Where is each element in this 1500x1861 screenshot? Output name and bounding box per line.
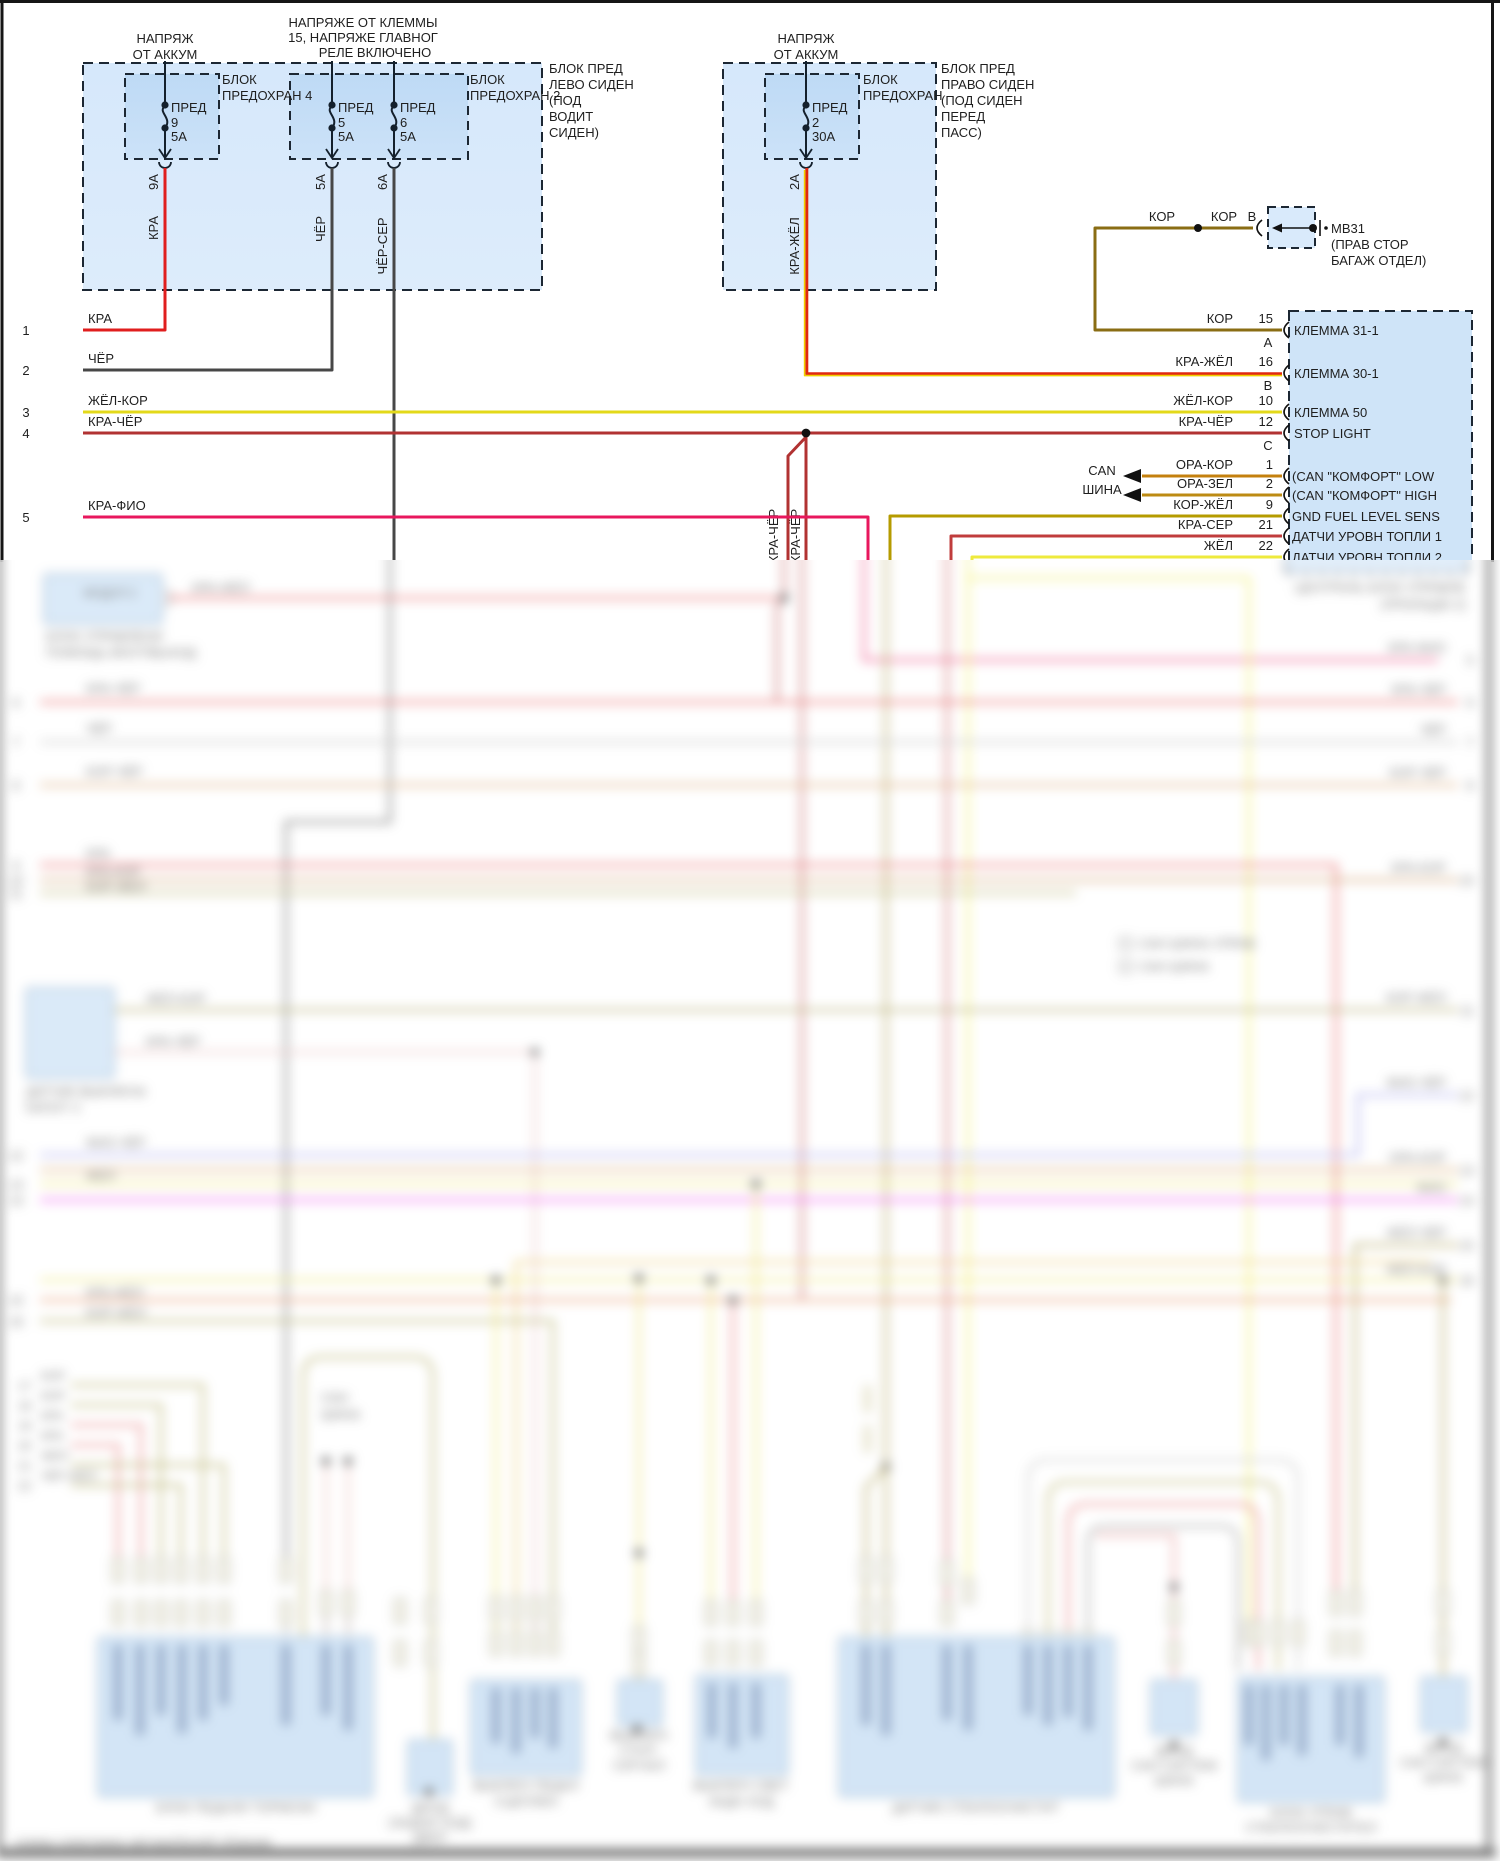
svg-text:15, НАПРЯЖЕ ГЛАВНОГ: 15, НАПРЯЖЕ ГЛАВНОГ xyxy=(288,30,438,45)
svg-text:2: 2 xyxy=(1266,476,1273,491)
svg-text:ОРА-КОР: ОРА-КОР xyxy=(1176,457,1233,472)
svg-text:ВОДИТ: ВОДИТ xyxy=(549,109,593,124)
svg-text:4: 4 xyxy=(22,426,29,441)
svg-text:ПРЕД: ПРЕД xyxy=(812,100,848,115)
svg-text:3: 3 xyxy=(22,405,29,420)
svg-text:5А: 5А xyxy=(400,129,416,144)
svg-text:ПРАВО СИДЕН: ПРАВО СИДЕН xyxy=(941,77,1034,92)
svg-text:ПРЕДОХРАН 2: ПРЕДОХРАН 2 xyxy=(470,88,560,103)
svg-text:КРА-ЖЁЛ: КРА-ЖЁЛ xyxy=(1175,354,1233,369)
svg-text:КОР: КОР xyxy=(1149,209,1175,224)
svg-text:В: В xyxy=(1248,209,1257,224)
svg-text:21: 21 xyxy=(1259,517,1273,532)
svg-text:КРА: КРА xyxy=(88,311,112,326)
svg-text:ЧЁР: ЧЁР xyxy=(88,351,114,366)
svg-text:ПАСС): ПАСС) xyxy=(941,125,982,140)
svg-text:9: 9 xyxy=(1266,497,1273,512)
svg-text:БЛОК: БЛОК xyxy=(863,72,898,87)
svg-text:2: 2 xyxy=(812,115,819,130)
svg-text:5А: 5А xyxy=(338,129,354,144)
svg-text:РЕЛЕ ВКЛЮЧЕНО: РЕЛЕ ВКЛЮЧЕНО xyxy=(319,45,431,60)
svg-text:БЛОК: БЛОК xyxy=(222,72,257,87)
svg-text:30А: 30А xyxy=(812,129,835,144)
svg-text:6А: 6А xyxy=(375,174,390,190)
svg-text:ПРЕД: ПРЕД xyxy=(338,100,374,115)
svg-text:ПРЕДОХРАН 4: ПРЕДОХРАН 4 xyxy=(222,88,312,103)
svg-text:БЛОК ПРЕД: БЛОК ПРЕД xyxy=(549,61,623,76)
svg-text:КРА-ЧЁР: КРА-ЧЁР xyxy=(1179,414,1233,429)
svg-text:КЛЕММА 31-1: КЛЕММА 31-1 xyxy=(1294,323,1379,338)
svg-text:6: 6 xyxy=(400,115,407,130)
svg-text:ПРЕД: ПРЕД xyxy=(171,100,207,115)
svg-text:5: 5 xyxy=(22,510,29,525)
svg-text:C: C xyxy=(1263,438,1272,453)
svg-text:5А: 5А xyxy=(313,174,328,190)
svg-text:16: 16 xyxy=(1259,354,1273,369)
svg-text:ЛЕВО СИДЕН: ЛЕВО СИДЕН xyxy=(549,77,634,92)
svg-text:ЖЁЛ: ЖЁЛ xyxy=(1204,538,1233,553)
svg-text:(ПОД: (ПОД xyxy=(549,93,581,108)
svg-text:ОТ АККУМ: ОТ АККУМ xyxy=(133,47,198,62)
svg-text:БАГАЖ ОТДЕЛ): БАГАЖ ОТДЕЛ) xyxy=(1331,253,1426,268)
svg-text:КОР: КОР xyxy=(1207,311,1233,326)
svg-text:МВ31: МВ31 xyxy=(1331,221,1365,236)
svg-text:15: 15 xyxy=(1259,311,1273,326)
svg-text:(ПРАВ СТОР: (ПРАВ СТОР xyxy=(1331,237,1409,252)
svg-text:B: B xyxy=(1264,378,1273,393)
svg-text:БЛОК: БЛОК xyxy=(470,72,505,87)
svg-text:2А: 2А xyxy=(787,174,802,190)
svg-text:9А: 9А xyxy=(146,174,161,190)
svg-text:ОТ АККУМ: ОТ АККУМ xyxy=(774,47,839,62)
svg-text:ЧЁР: ЧЁР xyxy=(313,216,328,242)
svg-text:5А: 5А xyxy=(171,129,187,144)
svg-text:КРА-ЖЁЛ: КРА-ЖЁЛ xyxy=(787,217,802,275)
svg-text:КОР-ЖЁЛ: КОР-ЖЁЛ xyxy=(1173,497,1233,512)
svg-text:(CAN "КОМФОРТ" LOW: (CAN "КОМФОРТ" LOW xyxy=(1292,469,1435,484)
svg-text:ПРЕД: ПРЕД xyxy=(400,100,436,115)
svg-text:ЧЁР-СЕР: ЧЁР-СЕР xyxy=(375,217,390,274)
svg-text:1: 1 xyxy=(22,323,29,338)
svg-text:ПЕРЕД: ПЕРЕД xyxy=(941,109,985,124)
svg-text:CAN: CAN xyxy=(1088,463,1115,478)
svg-text:2: 2 xyxy=(22,363,29,378)
svg-text:ШИНА: ШИНА xyxy=(1082,482,1122,497)
svg-text:ОРА-ЗЕЛ: ОРА-ЗЕЛ xyxy=(1177,476,1233,491)
svg-text:5: 5 xyxy=(338,115,345,130)
svg-text:ДАТЧИ УРОВН ТОПЛИ 1: ДАТЧИ УРОВН ТОПЛИ 1 xyxy=(1292,529,1442,544)
svg-text:КЛЕММА 30-1: КЛЕММА 30-1 xyxy=(1294,366,1379,381)
svg-text:ЖЁЛ-КОР: ЖЁЛ-КОР xyxy=(88,393,148,408)
svg-text:9: 9 xyxy=(171,115,178,130)
svg-text:КЛЕММА 50: КЛЕММА 50 xyxy=(1294,405,1367,420)
svg-text:НАПРЯЖЕ ОТ КЛЕММЫ: НАПРЯЖЕ ОТ КЛЕММЫ xyxy=(289,15,438,30)
svg-text:НАПРЯЖ: НАПРЯЖ xyxy=(136,31,193,46)
svg-text:STOP LIGHT: STOP LIGHT xyxy=(1294,426,1371,441)
svg-text:22: 22 xyxy=(1259,538,1273,553)
svg-text:A: A xyxy=(1264,335,1273,350)
svg-text:СИДЕН): СИДЕН) xyxy=(549,125,599,140)
svg-text:КРА-ЧЁР: КРА-ЧЁР xyxy=(88,414,142,429)
svg-text:GND FUEL LEVEL SENS: GND FUEL LEVEL SENS xyxy=(1292,509,1440,524)
svg-text:ЖЁЛ-КОР: ЖЁЛ-КОР xyxy=(1173,393,1233,408)
svg-text:КРА-ФИО: КРА-ФИО xyxy=(88,498,146,513)
svg-text:(ПОД СИДЕН: (ПОД СИДЕН xyxy=(941,93,1023,108)
svg-text:КРА-СЕР: КРА-СЕР xyxy=(1178,517,1233,532)
svg-text:1: 1 xyxy=(1266,457,1273,472)
svg-text:10: 10 xyxy=(1259,393,1273,408)
svg-text:ПРЕДОХРАН: ПРЕДОХРАН xyxy=(863,88,943,103)
svg-text:БЛОК ПРЕД: БЛОК ПРЕД xyxy=(941,61,1015,76)
svg-text:(CAN "КОМФОРТ" HIGH: (CAN "КОМФОРТ" HIGH xyxy=(1292,488,1437,503)
svg-text:КОР: КОР xyxy=(1211,209,1237,224)
svg-text:12: 12 xyxy=(1259,414,1273,429)
svg-text:НАПРЯЖ: НАПРЯЖ xyxy=(777,31,834,46)
svg-text:КРА: КРА xyxy=(146,216,161,240)
